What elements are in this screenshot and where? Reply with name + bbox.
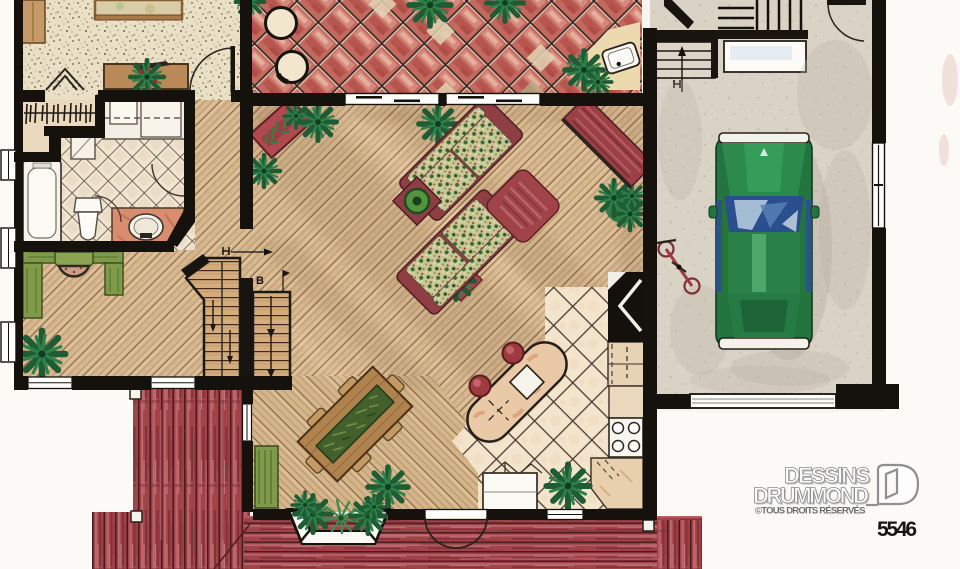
svg-text:5546: 5546 xyxy=(877,518,918,541)
svg-text:©TOUS DROITS RÉSERVÉS: ©TOUS DROITS RÉSERVÉS xyxy=(755,506,866,517)
svg-text:DRUMMOND: DRUMMOND xyxy=(753,483,870,508)
svg-text:B: B xyxy=(256,275,264,287)
